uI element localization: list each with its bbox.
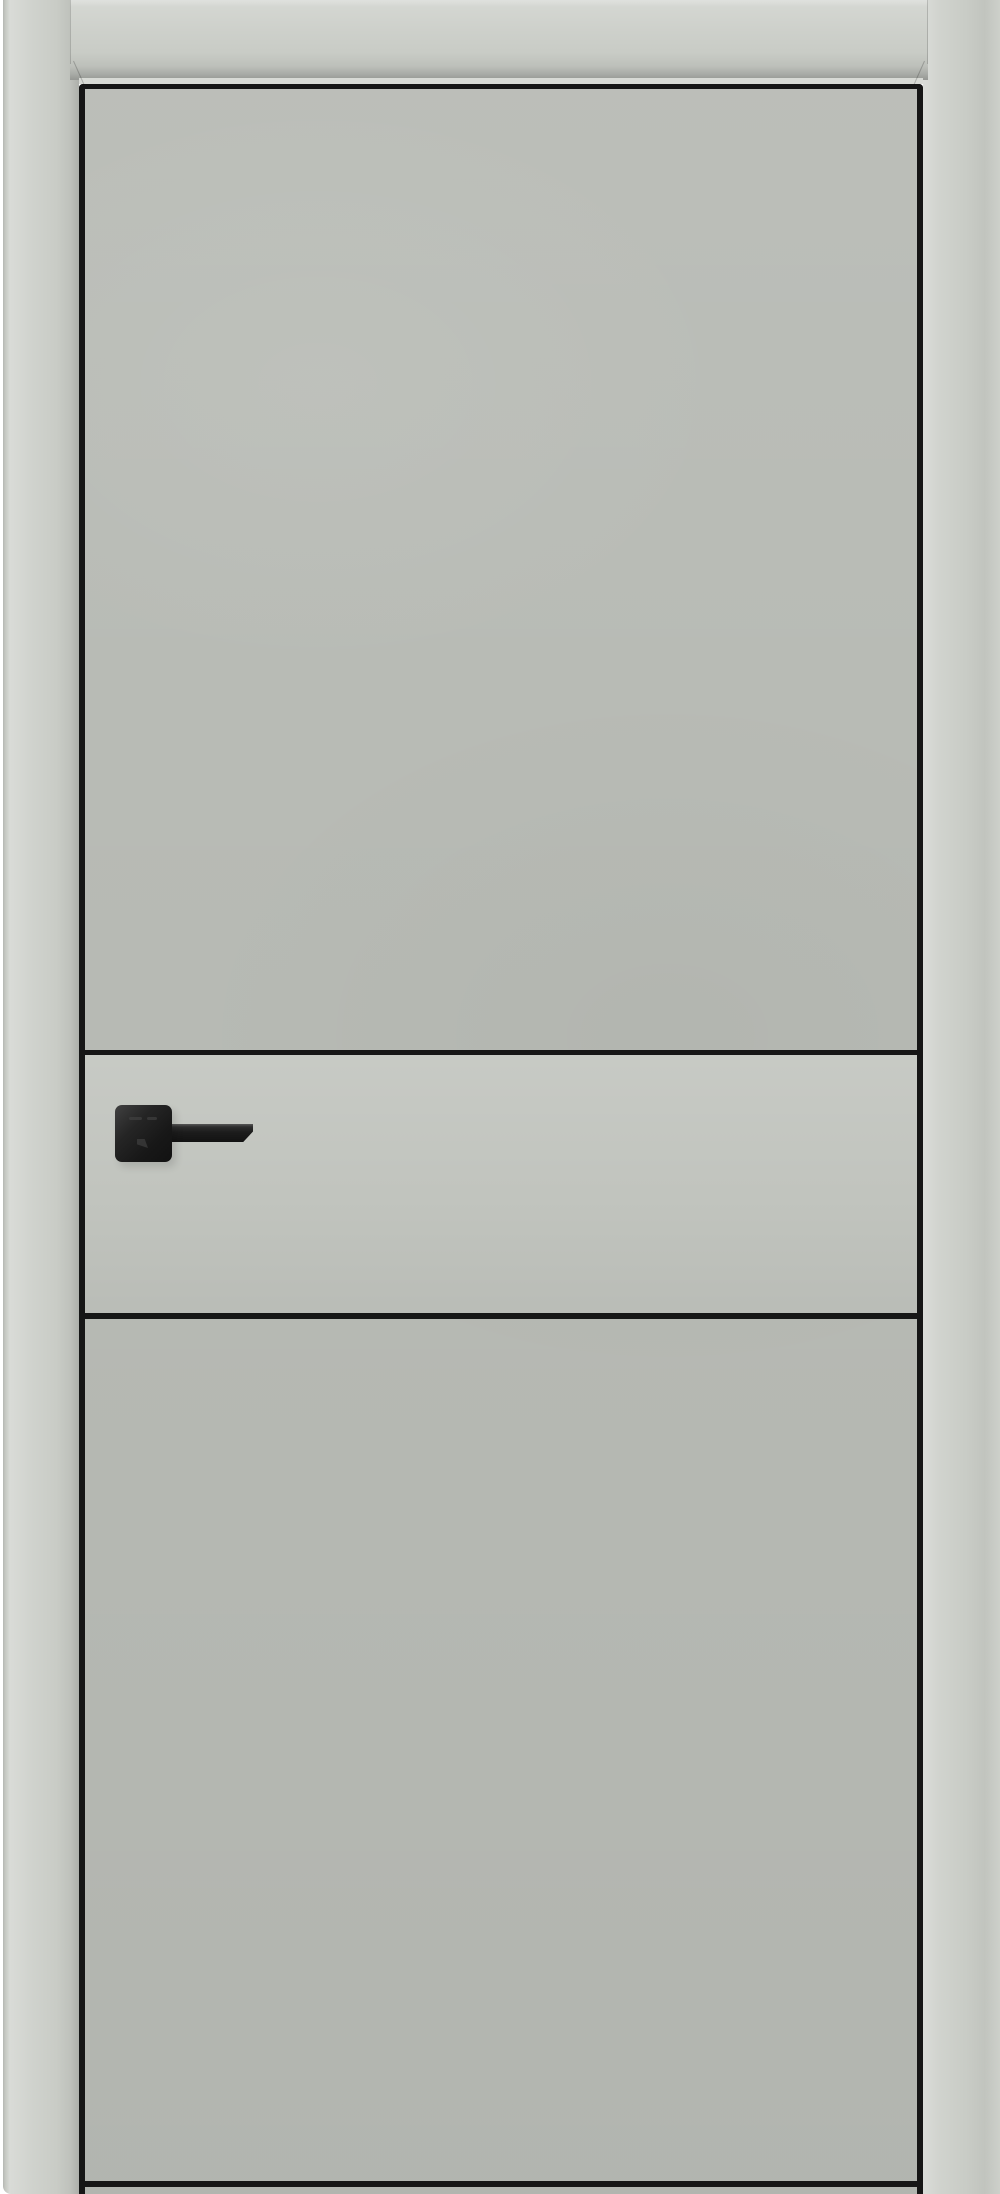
handle-rose-glint [147, 1117, 157, 1120]
frame-seam-right [927, 0, 928, 64]
door-frame-right-jamb [923, 0, 1000, 2194]
handle-rose-glint [137, 1139, 148, 1148]
inlay-trim-line-bottom [79, 1313, 923, 1319]
door-frame-left-jamb [3, 0, 79, 2194]
frame-seam-left [70, 0, 71, 64]
frame-leaf-reveal [79, 78, 923, 84]
door-frame-head-jamb [70, 0, 928, 80]
handle-lever [164, 1124, 253, 1142]
door-product-image [0, 0, 1000, 2194]
leaf-bottom-edge-trim [79, 2181, 923, 2187]
handle-rose-glint [129, 1117, 142, 1120]
leaf-middle-band [85, 1055, 917, 1313]
inlay-trim-line-top [79, 1050, 923, 1055]
handle-rose [115, 1105, 172, 1162]
